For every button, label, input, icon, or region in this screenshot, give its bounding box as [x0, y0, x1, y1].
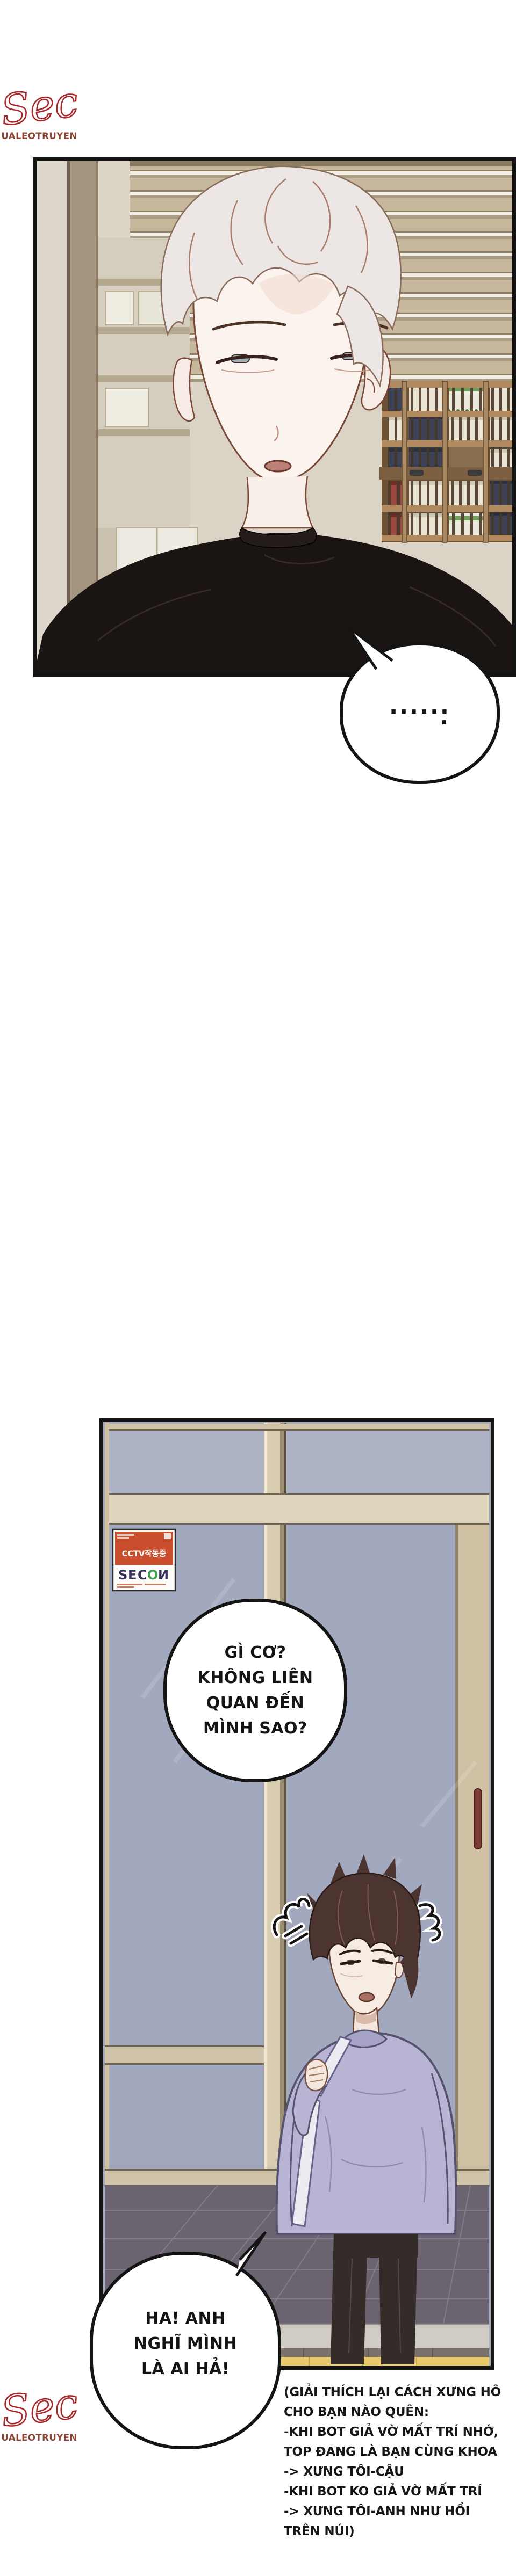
translator-footnote: (GIẢI THÍCH LẠI CÁCH XƯNG HÔ CHO BẠN NÀO…: [284, 2383, 515, 2542]
mouth: [359, 1993, 374, 2001]
secon-letter-e: E: [128, 1568, 137, 1583]
watermark-site-name: DUALEOTRUYEN: [1, 131, 77, 141]
bubble-exclaim-tail: [226, 2223, 296, 2293]
right-frame-column: [455, 1525, 489, 2185]
door-handle: [474, 1789, 482, 1849]
footnote-line-8: TRÊN NÚI): [284, 2522, 515, 2542]
silence-dot-tail: .: [440, 706, 448, 728]
fist-holding-strap: [305, 2059, 327, 2091]
door-frame-strip: [264, 1423, 286, 2185]
cctv-sticker: CCTV작동중 S E C O И: [113, 1529, 175, 1591]
transom-band: [105, 1493, 489, 1525]
question-line-2: KHÔNG LIÊN: [198, 1665, 313, 1690]
speech-bubble-question: GÌ CƠ? KHÔNG LIÊN QUAN ĐẾN MÌNH SAO?: [163, 1599, 347, 1782]
exclaim-line-3: LÀ AI HẢ!: [141, 2356, 230, 2382]
watermark-script-logo: Sec: [1, 2379, 81, 2437]
question-line-4: MÌNH SAO?: [203, 1716, 307, 1741]
secon-letter-n: И: [158, 1568, 169, 1583]
watermark-site-name: DUALEOTRUYEN: [1, 2433, 77, 2443]
neck: [242, 476, 313, 528]
secon-letter-s: S: [118, 1568, 127, 1583]
exclaim-line-1: HA! ANH: [145, 2306, 225, 2331]
footnote-line-1: (GIẢI THÍCH LẠI CÁCH XƯNG HÔ: [284, 2383, 515, 2403]
secon-logo: S E C O И: [118, 1568, 169, 1583]
window-rail: [105, 2045, 264, 2065]
comic-page: { "watermark": { "script": "Sec", "site"…: [0, 0, 516, 2576]
cctv-warning-text: CCTV작동중: [122, 1549, 166, 1558]
watermark-script-logo: Sec: [1, 78, 81, 135]
footnote-line-6: -KHI BOT KO GIẢ VỜ MẤT TRÍ: [284, 2482, 515, 2502]
bookshelf: [379, 381, 516, 542]
exclaim-line-2: NGHĨ MÌNH: [134, 2331, 237, 2356]
question-line-1: GÌ CƠ?: [225, 1640, 286, 1665]
comic-panel-2: CCTV작동중 S E C O И: [99, 1418, 494, 2370]
secon-letter-o: O: [147, 1568, 158, 1583]
mouth: [265, 461, 291, 471]
footnote-line-4: TOP ĐANG LÀ BẠN CÙNG KHOA: [284, 2442, 515, 2462]
footnote-line-7: -> XƯNG TÔI-ANH NHƯ HỒI: [284, 2502, 515, 2522]
footnote-line-5: -> XƯNG TÔI-CẬU: [284, 2462, 515, 2482]
comic-panel-1: [33, 157, 516, 677]
question-line-3: QUAN ĐẾN: [206, 1690, 304, 1716]
secon-letter-c: C: [138, 1568, 147, 1583]
site-watermark-top: Sec DUALEOTRUYEN: [1, 76, 87, 146]
site-watermark-bottom: Sec DUALEOTRUYEN: [1, 2378, 87, 2448]
footnote-line-2: CHO BẠN NÀO QUÊN:: [284, 2403, 515, 2422]
bubble-silence-tail: [322, 618, 408, 682]
footnote-line-3: -KHI BOT GIẢ VỜ MẤT TRÍ NHỚ,: [284, 2422, 515, 2442]
